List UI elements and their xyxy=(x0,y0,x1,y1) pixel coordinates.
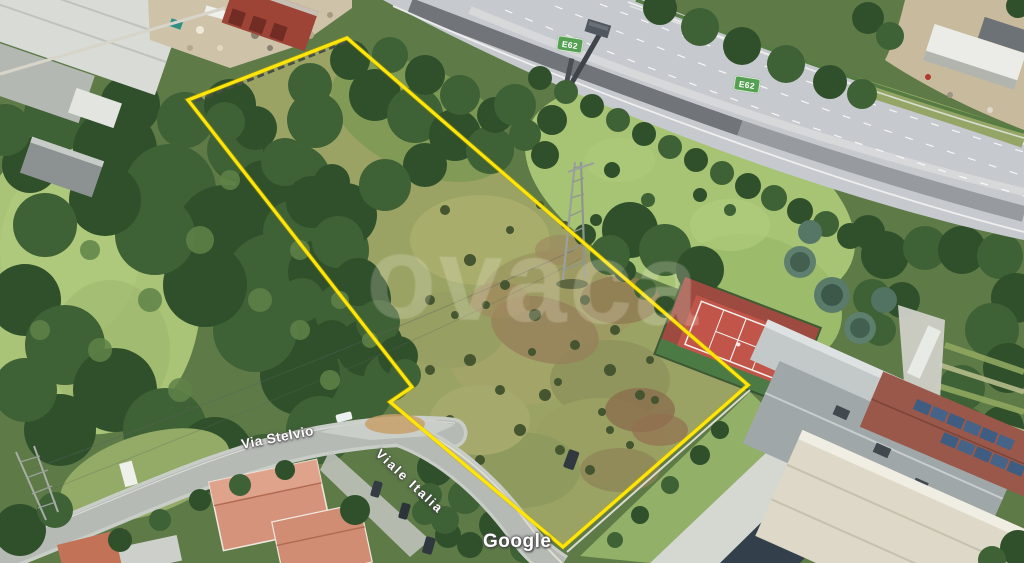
aerial-scene xyxy=(0,0,1024,563)
google-watermark: Google xyxy=(483,531,551,553)
aerial-photo: ovaca E62 E62 Via Stelvio Viale Italia G… xyxy=(0,0,1024,563)
